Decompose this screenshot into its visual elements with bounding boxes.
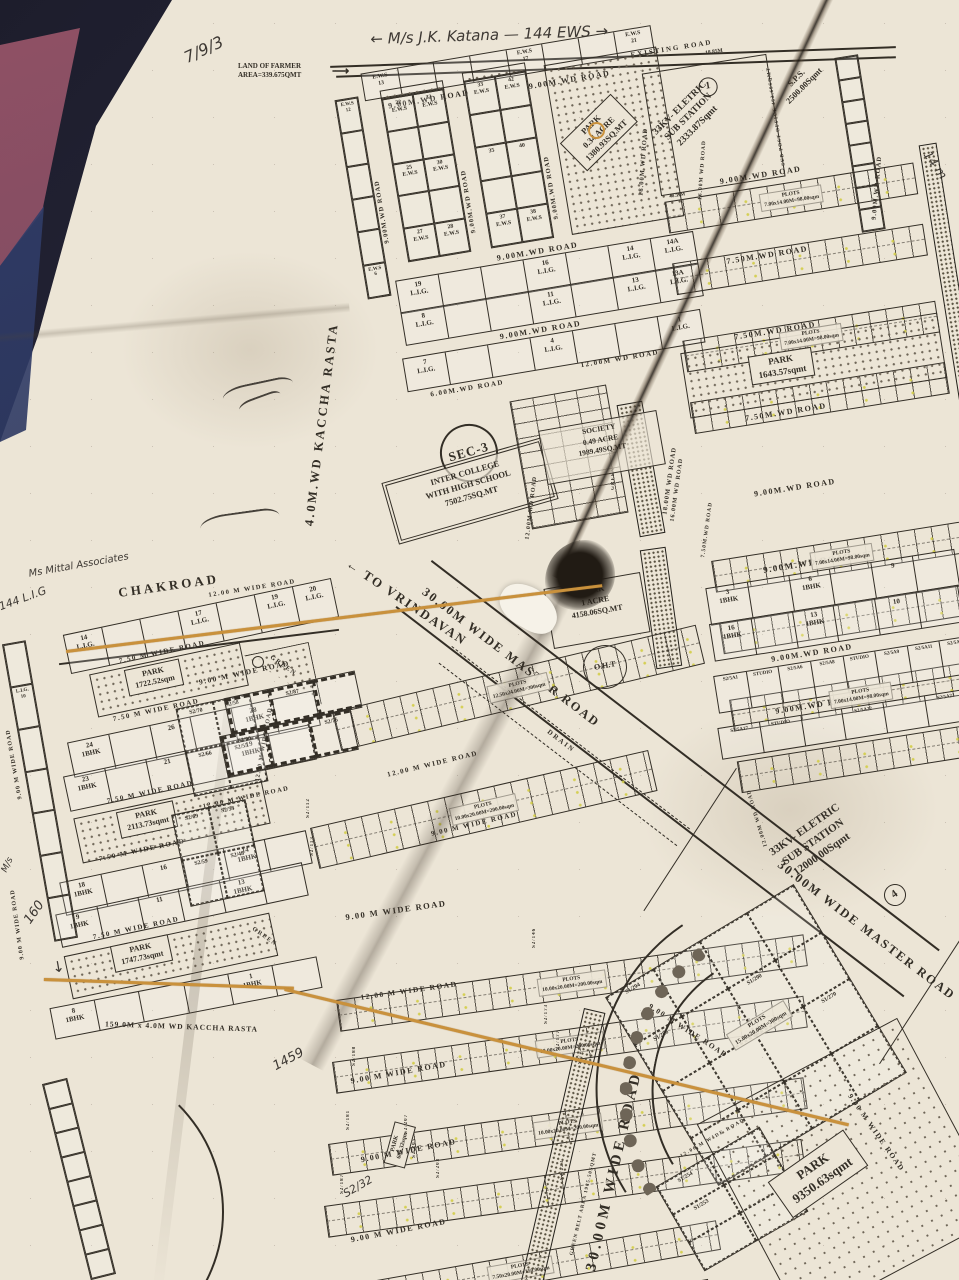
plot-cell xyxy=(571,278,619,317)
s2-number: S2/181 xyxy=(346,1100,351,1130)
plot-cell xyxy=(358,229,385,266)
plot-cell xyxy=(801,709,847,745)
ews-block-1: 22E.W.S32E.W.S25E.W.S30E.W.S27E.W.S28E.W… xyxy=(381,88,472,262)
land-of-farmer-line1: LAND OF FARMER xyxy=(238,62,301,71)
orange-marker xyxy=(588,122,605,139)
road-label: 9.00M.WD ROAD xyxy=(753,477,836,499)
plot-cell: 30E.W.S xyxy=(423,154,459,191)
plot-cell: 231BHK xyxy=(64,769,112,811)
s2-number: S2/173 xyxy=(544,992,549,1024)
plot-cell xyxy=(884,696,930,732)
plot-cell: 32E.W.S xyxy=(413,89,449,126)
s2-113-label: S2/113 xyxy=(310,828,315,856)
plot-cell: 42E.W.S xyxy=(495,71,531,109)
plot-cell: S2/5A6 xyxy=(779,662,817,703)
plot-cell xyxy=(511,171,547,209)
land-of-farmer-note: LAND OF FARMER AREA=339.675QMT xyxy=(238,62,301,80)
plot-spec: PLOTS7.00x14.00M=98.00sqm xyxy=(759,184,824,211)
plot-cell: 10 xyxy=(875,592,922,634)
plot-cell xyxy=(446,345,494,384)
plot-cell xyxy=(917,586,959,628)
plot-cell xyxy=(486,292,534,331)
plot-cell: 4L.I.G. xyxy=(530,331,578,370)
plot-cell xyxy=(488,338,536,377)
plot-cell: S2/5A1 xyxy=(714,672,752,713)
plot-cell: S2/5A17 xyxy=(718,722,764,758)
existing-road-length: 18.85M xyxy=(705,48,723,57)
plot-cell xyxy=(834,599,881,641)
s2-number: S2/207 xyxy=(404,1108,409,1134)
plot-cell: 38E.W.S xyxy=(517,204,553,242)
plot-cell: S2/5A22 xyxy=(842,703,888,739)
plot-cell: S2/5A9 xyxy=(875,646,913,687)
plot-cell: 8L.I.G. xyxy=(402,306,450,345)
s2-number: S2/146 xyxy=(532,916,537,948)
plot-cell xyxy=(347,163,374,200)
plot-cell: 161BHK xyxy=(710,618,757,660)
plot-cell: E.W.S12 xyxy=(336,97,363,134)
site-plan-photo: ← M/s J.K. Katana — 144 EWS → 7/9/3 LAND… xyxy=(0,0,959,1280)
plot-cell: 11L.I.G. xyxy=(529,285,577,324)
s2-number: S2/188 xyxy=(352,1036,357,1066)
plot-cell xyxy=(341,130,368,167)
plot-cell: 40 xyxy=(506,138,542,176)
plot-cell: 7L.I.G. xyxy=(403,352,451,391)
s2-number: S2/177 xyxy=(556,1020,561,1050)
plot-cell xyxy=(500,105,536,143)
s2-number: S2/205 xyxy=(412,1132,417,1158)
plot-cell: STUDIO xyxy=(747,667,785,708)
land-of-farmer-line2: AREA=339.675QMT xyxy=(238,71,301,80)
plot-cell xyxy=(429,186,465,223)
plot-cell xyxy=(418,122,454,159)
plot-cell: S2/5A11 xyxy=(908,641,946,682)
plot-cell: E.W.S6 xyxy=(363,262,390,299)
plot-cell: 28E.W.S xyxy=(434,219,470,256)
plot-cell xyxy=(352,196,379,233)
plot-cell: 13L.I.G. xyxy=(614,271,662,310)
s2-number: S2/203 xyxy=(436,1152,441,1178)
plot-cell xyxy=(751,612,798,654)
plot-cell: 131BHK xyxy=(793,605,840,647)
ews-block-2: 33E.W.S42E.W.S354037E.W.S38E.W.S xyxy=(463,70,554,248)
plot-cell: S2/5A23 xyxy=(925,690,959,726)
plot-cell xyxy=(444,299,492,338)
plot-cell: STUDIO xyxy=(760,716,806,752)
s2-112-label: S2/112 xyxy=(306,790,311,818)
